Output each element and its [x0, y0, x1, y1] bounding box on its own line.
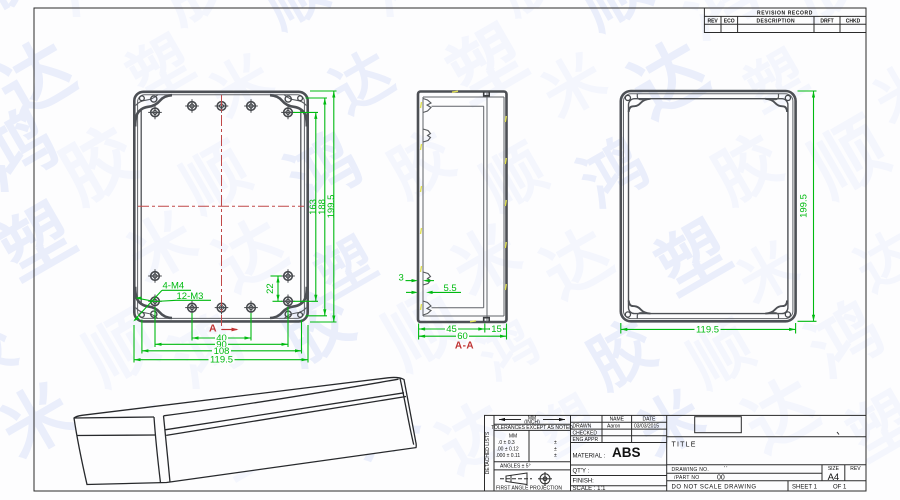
svg-text:REV: REV	[850, 466, 861, 472]
svg-text:MATERIAL :: MATERIAL :	[573, 454, 606, 460]
svg-text:SHEET 1: SHEET 1	[792, 485, 818, 491]
svg-text:3: 3	[399, 273, 404, 284]
svg-text:FIRST ANGLE PROJECTION: FIRST ANGLE PROJECTION	[496, 486, 562, 492]
svg-text:TITLE: TITLE	[672, 442, 697, 449]
svg-text:119.5: 119.5	[696, 324, 719, 335]
svg-text:FINISH:: FINISH:	[573, 479, 595, 485]
svg-text:.00 ± 0.12: .00 ± 0.12	[497, 447, 519, 453]
svg-text:DRAWING NO.: DRAWING NO.	[672, 467, 710, 473]
svg-text:ANGLES ± 5°: ANGLES ± 5°	[500, 463, 531, 469]
svg-text:/PART NO: /PART NO	[674, 475, 699, 481]
svg-text:DETACHED LISTS: DETACHED LISTS	[485, 431, 491, 474]
svg-text:ECO: ECO	[724, 19, 735, 25]
svg-text:00: 00	[717, 475, 725, 482]
svg-text:.000 ± 0.11: .000 ± 0.11	[496, 453, 521, 459]
svg-text:15: 15	[491, 324, 502, 335]
svg-text:119.5: 119.5	[210, 355, 233, 366]
svg-text:DESCRIPTION: DESCRIPTION	[757, 19, 796, 25]
svg-text:22: 22	[265, 283, 276, 294]
svg-text:DO NOT SCALE DRAWING: DO NOT SCALE DRAWING	[672, 485, 757, 491]
svg-text:45: 45	[446, 324, 457, 335]
svg-text:NAME: NAME	[610, 416, 625, 422]
svg-text:REV: REV	[707, 19, 718, 25]
svg-text:SCALE : 1:1: SCALE : 1:1	[573, 486, 607, 492]
svg-text:REVISION RECORD: REVISION RECORD	[757, 11, 813, 17]
svg-text:.0 ± 0.3: .0 ± 0.3	[498, 440, 515, 446]
svg-text:CHECKED: CHECKED	[573, 430, 598, 436]
svg-text:TOLERANCES EXCEPT AS NOTED: TOLERANCES EXCEPT AS NOTED	[491, 425, 573, 431]
svg-text:A-A: A-A	[455, 341, 474, 352]
svg-text:±: ±	[554, 447, 557, 453]
svg-text:OF 1: OF 1	[833, 485, 847, 491]
svg-text:ENG APPR: ENG APPR	[573, 437, 599, 443]
svg-text:199.5: 199.5	[326, 195, 337, 219]
svg-text:DRAWN: DRAWN	[573, 424, 592, 430]
svg-text:±: ±	[554, 440, 557, 446]
svg-text:03/03/2015: 03/03/2015	[634, 424, 659, 430]
svg-text:' ': ' '	[724, 466, 727, 472]
svg-text:DATE: DATE	[643, 416, 657, 422]
svg-text:QT'Y :: QT'Y :	[573, 468, 590, 474]
svg-text:CHKD: CHKD	[846, 19, 861, 25]
svg-text:ABS: ABS	[612, 445, 641, 460]
svg-text:±: ±	[554, 453, 557, 459]
svg-text:199.5: 199.5	[799, 194, 810, 218]
svg-text:DRFT: DRFT	[820, 19, 833, 25]
svg-text:A4: A4	[828, 472, 840, 483]
svg-text:MM: MM	[509, 434, 517, 440]
svg-text:Aaron: Aaron	[607, 424, 621, 430]
